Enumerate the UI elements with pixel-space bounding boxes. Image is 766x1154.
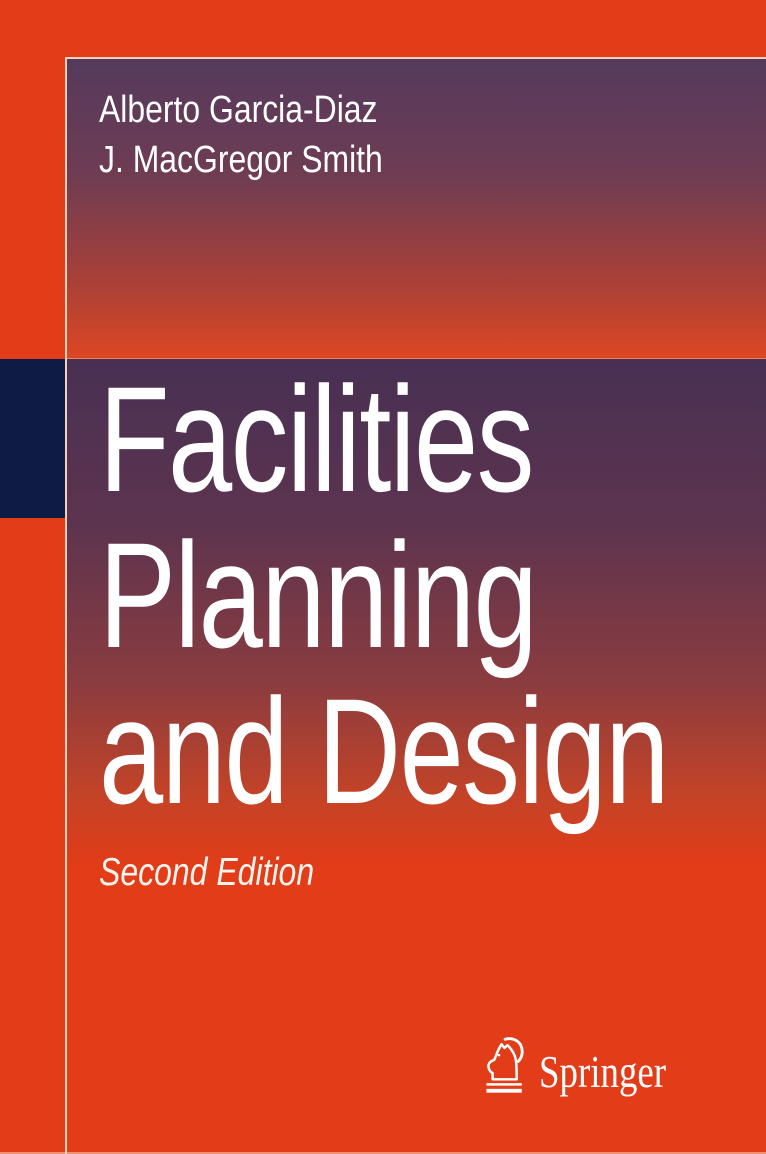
title-line-3: and Design xyxy=(99,673,613,829)
navy-accent-square xyxy=(0,359,65,518)
springer-wordmark: Springer xyxy=(539,1052,666,1094)
springer-horse-knight-icon xyxy=(485,1036,527,1094)
book-title: Facilities Planning and Design xyxy=(99,361,613,829)
author-name-1: Alberto Garcia-Diaz xyxy=(99,85,659,135)
title-line-1: Facilities xyxy=(99,361,613,517)
springer-logo: Springer xyxy=(485,1036,694,1094)
cover-panel: Alberto Garcia-Diaz J. MacGregor Smith F… xyxy=(65,57,766,1154)
edition-label: Second Edition xyxy=(99,851,646,895)
book-cover: Alberto Garcia-Diaz J. MacGregor Smith F… xyxy=(0,0,766,1154)
author-band: Alberto Garcia-Diaz J. MacGregor Smith xyxy=(67,59,766,358)
author-name-2: J. MacGregor Smith xyxy=(99,135,659,185)
author-block: Alberto Garcia-Diaz J. MacGregor Smith xyxy=(99,85,659,185)
title-band: Facilities Planning and Design Second Ed… xyxy=(67,358,766,1154)
title-line-2: Planning xyxy=(99,517,613,673)
